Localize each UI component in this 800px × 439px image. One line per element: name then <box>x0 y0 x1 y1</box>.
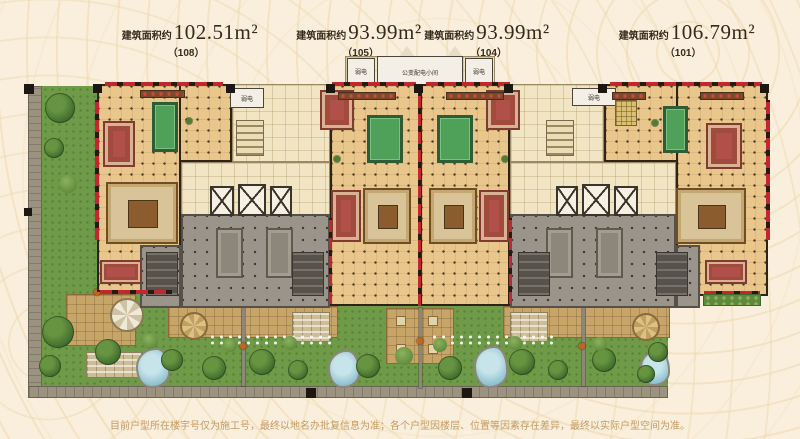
bush <box>283 336 297 350</box>
billiard-table <box>663 106 688 153</box>
potted-plant <box>652 120 658 126</box>
living-room-set <box>363 188 411 244</box>
bush <box>508 336 522 350</box>
weak-current-room: 弱电 <box>347 58 375 84</box>
billiard-table <box>367 115 403 163</box>
bush <box>593 337 607 351</box>
wall-marker <box>93 84 102 93</box>
wall-marker <box>414 84 423 93</box>
flower-planter <box>700 92 744 100</box>
wall-marker <box>504 84 513 93</box>
living-room-set <box>429 188 477 244</box>
room-label: 公变配电小间 <box>402 68 438 77</box>
room-label: 弱电 <box>588 93 600 102</box>
staircase <box>546 120 574 156</box>
flower-planter <box>338 92 396 100</box>
tree <box>95 339 121 365</box>
flower-cluster <box>417 338 423 344</box>
red-accent-wall <box>509 218 512 304</box>
room-label: 弱电 <box>473 67 485 76</box>
tree <box>548 360 568 380</box>
tree <box>637 365 655 383</box>
terrace-rug <box>546 228 573 278</box>
staircase <box>236 120 264 156</box>
tree <box>592 348 616 372</box>
tree <box>356 354 380 378</box>
wall-marker <box>306 388 316 398</box>
terrace-rug <box>266 228 293 278</box>
weak-current-room: 弱电 <box>230 88 264 108</box>
red-accent-wall <box>766 100 770 240</box>
tree <box>45 93 75 123</box>
terrace-rug <box>596 228 623 278</box>
terrace-rug <box>216 228 243 278</box>
red-accent-wall <box>332 82 416 86</box>
wall-marker <box>24 84 34 94</box>
flower-cluster <box>240 343 246 349</box>
tree <box>509 349 535 375</box>
flower-cluster <box>579 343 585 349</box>
billiard-table <box>437 115 473 163</box>
fitness-equipment <box>656 252 688 296</box>
small-rug <box>705 260 747 284</box>
disclaimer-text: 目前户型所在楼宇号仅为施工号，最终以地名办批复信息为准；各个户型因楼层、位置等因… <box>110 417 690 432</box>
tree <box>202 356 226 380</box>
wall-marker <box>598 84 607 93</box>
floor-plan-page: 建筑面积约 102.51m² （108） 建筑面积约 93.99m² （105）… <box>0 0 800 439</box>
weak-current-room: 弱电 <box>572 88 616 106</box>
planting-strip <box>703 294 761 306</box>
fitness-equipment <box>518 252 550 296</box>
red-accent-wall <box>610 82 762 86</box>
elevator <box>582 184 610 216</box>
wall-marker <box>24 208 32 216</box>
red-accent-wall <box>704 291 760 294</box>
room-label: 弱电 <box>355 67 367 76</box>
tiled-mat <box>615 100 637 126</box>
wall-marker <box>226 84 235 93</box>
elevator <box>270 186 292 216</box>
red-accent-wall <box>100 290 172 294</box>
wall-marker <box>462 388 472 398</box>
wall-marker <box>760 84 769 93</box>
red-accent-wall <box>105 82 223 86</box>
flower-planter <box>446 92 504 100</box>
elevator <box>238 184 266 216</box>
bush <box>433 338 447 352</box>
tree <box>648 342 668 362</box>
ornate-rug <box>103 121 135 167</box>
ornate-rug <box>331 190 361 242</box>
bush <box>142 333 158 349</box>
fitness-equipment <box>292 252 324 296</box>
flower-planter <box>140 90 185 98</box>
billiard-table <box>152 102 178 152</box>
ornate-rug <box>479 190 509 242</box>
red-accent-wall <box>329 218 332 304</box>
wall-marker <box>326 84 335 93</box>
tree <box>42 316 74 348</box>
bush <box>223 338 237 352</box>
red-accent-wall <box>95 100 99 240</box>
party-wall-divider <box>418 84 421 306</box>
tree <box>249 349 275 375</box>
tree <box>44 138 64 158</box>
weak-current-room: 弱电 <box>465 58 493 84</box>
elevator <box>614 186 638 216</box>
elevator <box>210 186 234 216</box>
tree <box>161 349 183 371</box>
living-room-set <box>676 188 746 244</box>
elevator <box>556 186 578 216</box>
living-room-set <box>106 182 178 244</box>
potted-plant <box>502 156 508 162</box>
tree <box>438 356 462 380</box>
ornate-rug <box>706 123 742 169</box>
flower-planter <box>612 92 646 100</box>
small-rug <box>100 260 142 284</box>
bush <box>59 175 77 193</box>
room-label: 弱电 <box>241 94 253 103</box>
potted-plant <box>334 156 340 162</box>
red-accent-wall <box>426 82 510 86</box>
tree <box>39 355 61 377</box>
tree <box>288 360 308 380</box>
potted-plant <box>186 118 192 124</box>
bush <box>395 347 413 365</box>
